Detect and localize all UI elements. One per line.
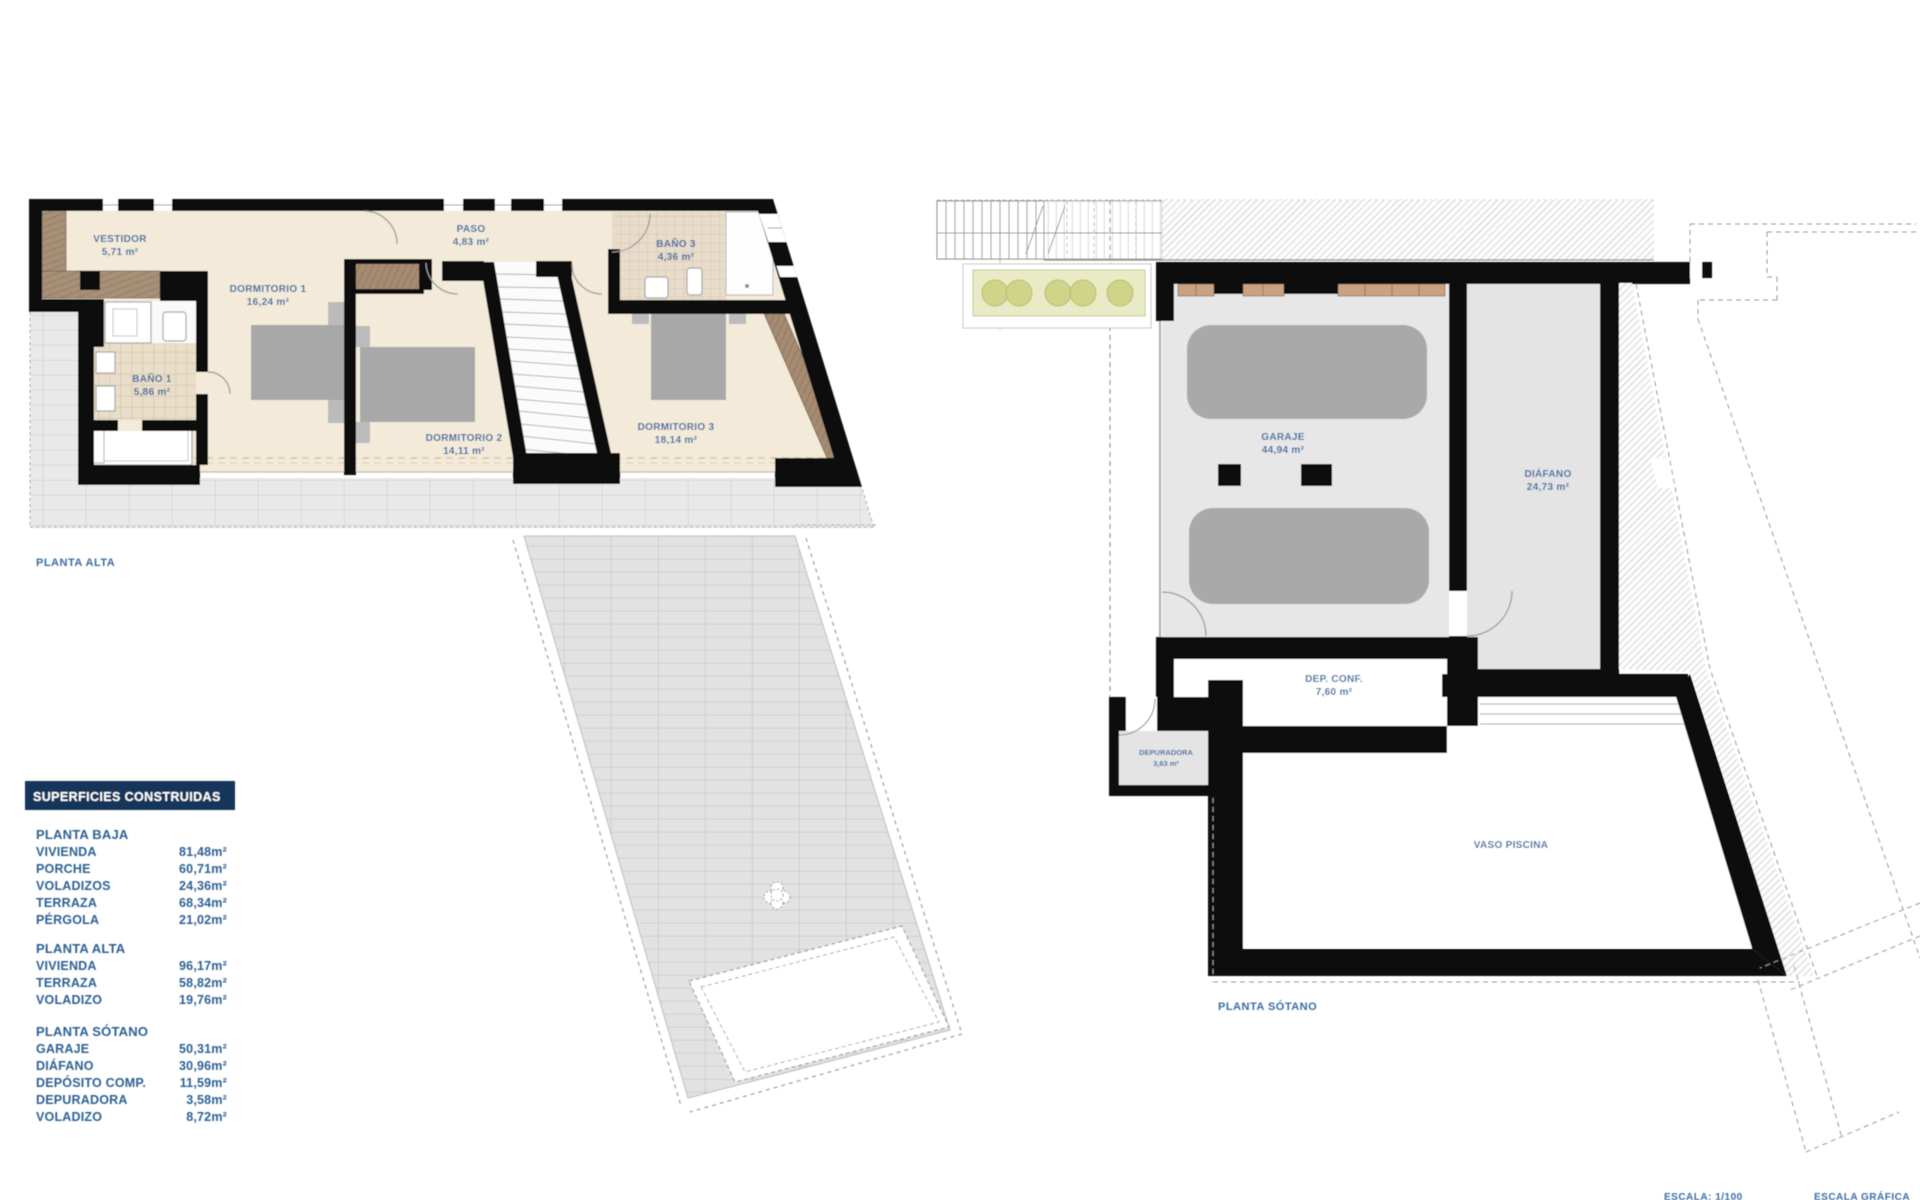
svg-text:96,17m²: 96,17m² [179, 959, 227, 973]
svg-text:19,76m²: 19,76m² [179, 993, 227, 1007]
svg-text:16,24 m²: 16,24 m² [247, 297, 290, 308]
svg-text:PÉRGOLA: PÉRGOLA [36, 912, 99, 927]
svg-text:PLANTA BAJA: PLANTA BAJA [36, 827, 129, 842]
svg-text:TERRAZA: TERRAZA [36, 976, 97, 990]
svg-text:ESCALA: 1/100: ESCALA: 1/100 [1664, 1192, 1743, 1200]
svg-text:21,02m²: 21,02m² [179, 913, 227, 927]
svg-text:PORCHE: PORCHE [36, 862, 91, 876]
svg-text:58,82m²: 58,82m² [179, 976, 227, 990]
svg-text:DEPURADORA: DEPURADORA [1139, 748, 1193, 757]
svg-text:DORMITORIO 3: DORMITORIO 3 [638, 422, 715, 433]
svg-text:14,11 m²: 14,11 m² [443, 446, 485, 457]
svg-text:ESCALA GRÁFICA: ESCALA GRÁFICA [1814, 1190, 1910, 1200]
svg-text:BAÑO 3: BAÑO 3 [656, 237, 696, 250]
svg-text:VOLADIZO: VOLADIZO [36, 1110, 102, 1124]
svg-text:VOLADIZOS: VOLADIZOS [36, 879, 111, 893]
svg-text:24,73 m²: 24,73 m² [1527, 482, 1570, 493]
svg-text:68,34m²: 68,34m² [179, 896, 227, 910]
svg-text:11,59m²: 11,59m² [180, 1076, 227, 1090]
svg-text:GARAJE: GARAJE [1261, 432, 1305, 443]
svg-text:5,86 m²: 5,86 m² [134, 387, 171, 398]
svg-text:24,36m²: 24,36m² [179, 879, 227, 893]
svg-text:81,48m²: 81,48m² [179, 845, 227, 859]
svg-text:18,14 m²: 18,14 m² [655, 435, 698, 446]
svg-text:PLANTA ALTA: PLANTA ALTA [36, 557, 115, 569]
svg-text:50,31m²: 50,31m² [179, 1042, 227, 1056]
svg-text:DEPURADORA: DEPURADORA [36, 1093, 128, 1107]
svg-text:3,63 m²: 3,63 m² [1153, 759, 1179, 768]
svg-text:44,94 m²: 44,94 m² [1262, 445, 1305, 456]
svg-text:4,36 m²: 4,36 m² [658, 252, 695, 263]
svg-text:DEPÓSITO COMP.: DEPÓSITO COMP. [36, 1075, 146, 1090]
svg-text:VESTIDOR: VESTIDOR [93, 234, 147, 245]
svg-text:VASO PISCINA: VASO PISCINA [1474, 840, 1549, 851]
svg-text:3,58m²: 3,58m² [186, 1093, 227, 1107]
svg-text:30,96m²: 30,96m² [179, 1059, 227, 1073]
svg-text:DEP. CONF.: DEP. CONF. [1305, 674, 1363, 685]
svg-text:60,71m²: 60,71m² [179, 862, 227, 876]
svg-text:DORMITORIO 2: DORMITORIO 2 [426, 433, 503, 444]
svg-text:BAÑO 1: BAÑO 1 [132, 372, 172, 385]
svg-text:TERRAZA: TERRAZA [36, 896, 97, 910]
svg-text:8,72m²: 8,72m² [186, 1110, 227, 1124]
svg-text:4,83 m²: 4,83 m² [453, 237, 490, 248]
svg-text:PLANTA SÓTANO: PLANTA SÓTANO [36, 1024, 148, 1039]
svg-text:7,60 m²: 7,60 m² [1316, 687, 1353, 698]
svg-text:PLANTA ALTA: PLANTA ALTA [36, 941, 126, 956]
svg-text:DIÁFANO: DIÁFANO [1524, 467, 1571, 480]
svg-text:5,71 m²: 5,71 m² [102, 247, 139, 258]
svg-text:VIVIENDA: VIVIENDA [36, 959, 97, 973]
svg-text:PLANTA SÓTANO: PLANTA SÓTANO [1218, 1000, 1317, 1013]
svg-text:DIÁFANO: DIÁFANO [36, 1058, 94, 1073]
svg-text:PASO: PASO [457, 224, 486, 235]
svg-text:GARAJE: GARAJE [36, 1042, 89, 1056]
svg-text:VIVIENDA: VIVIENDA [36, 845, 97, 859]
svg-text:DORMITORIO 1: DORMITORIO 1 [230, 284, 307, 295]
svg-text:SUPERFICIES CONSTRUIDAS: SUPERFICIES CONSTRUIDAS [33, 790, 221, 804]
svg-text:VOLADIZO: VOLADIZO [36, 993, 102, 1007]
